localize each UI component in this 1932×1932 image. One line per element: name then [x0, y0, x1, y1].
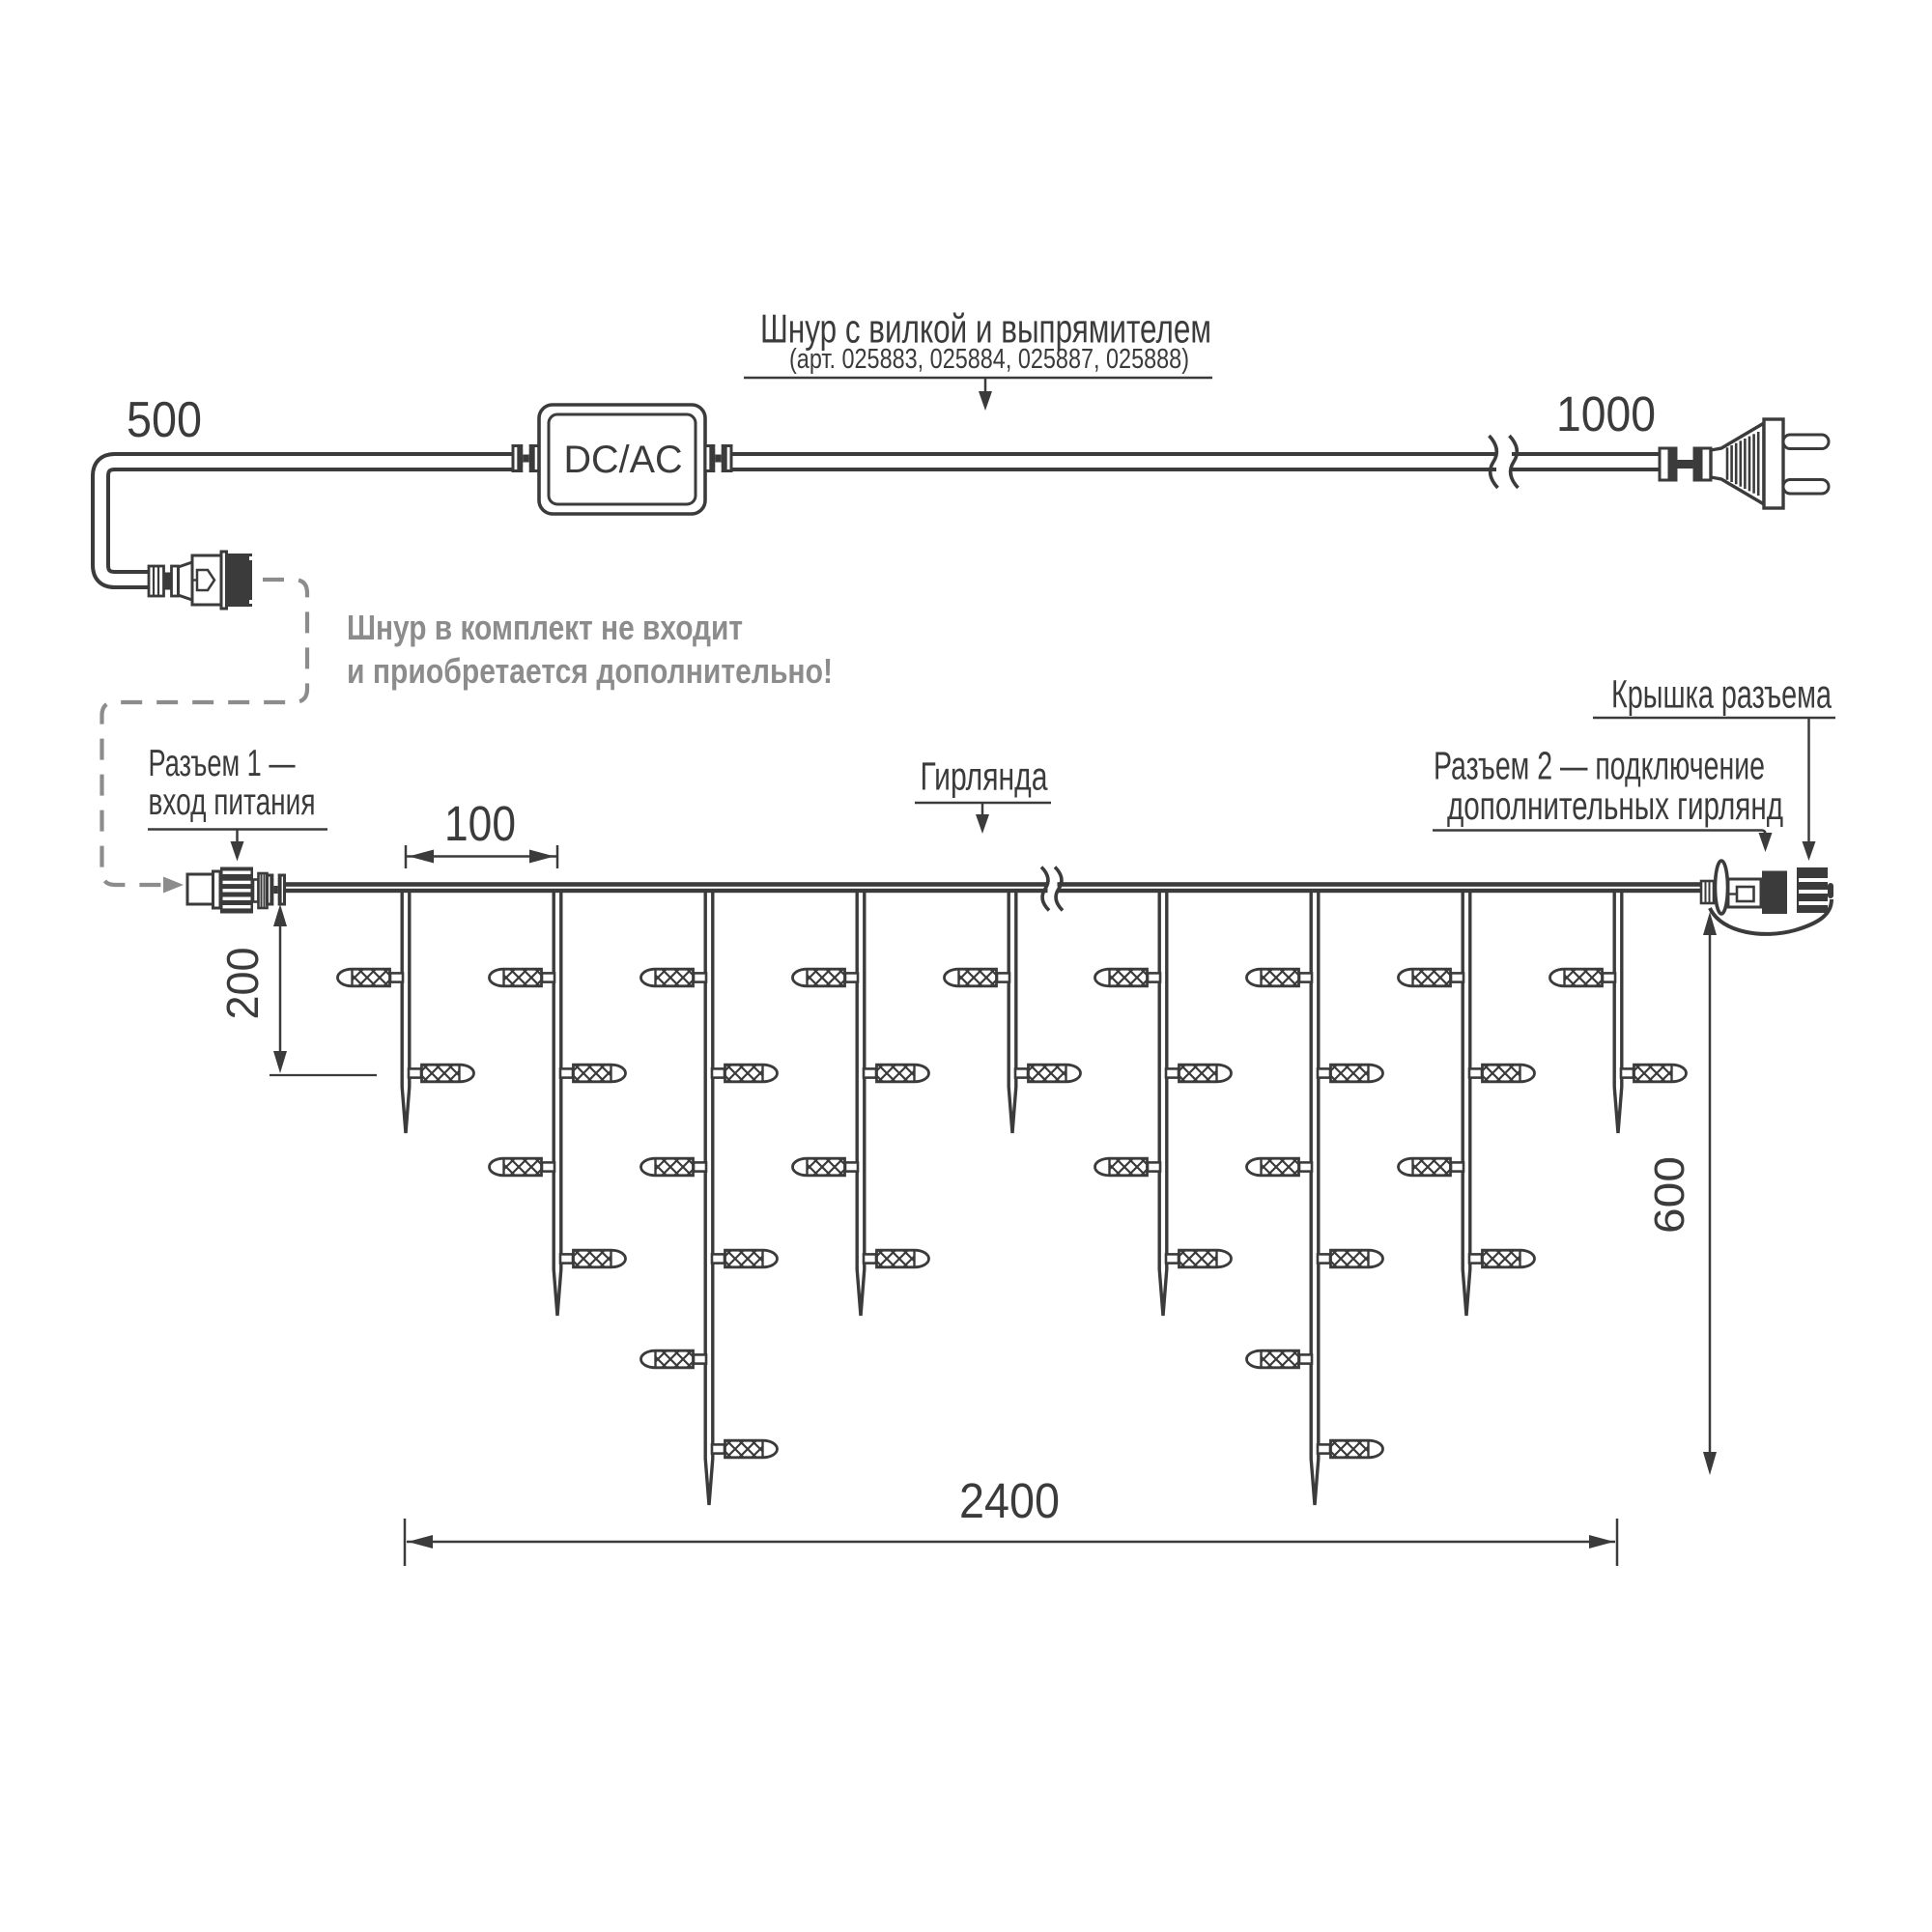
svg-text:2400: 2400 [959, 1473, 1060, 1528]
svg-text:600: 600 [1646, 1156, 1693, 1234]
svg-text:500: 500 [127, 392, 202, 448]
svg-text:1000: 1000 [1556, 386, 1656, 441]
svg-text:дополнительных гирлянд: дополнительных гирлянд [1447, 783, 1783, 828]
svg-text:вход питания: вход питания [149, 781, 316, 823]
svg-text:и приобретается дополнительно!: и приобретается дополнительно! [347, 651, 833, 691]
svg-text:Гирлянда: Гирлянда [921, 754, 1048, 799]
svg-text:(арт. 025883, 025884, 025887,: (арт. 025883, 025884, 025887, 025888) [789, 344, 1189, 375]
svg-text:Шнур в комплект не входит: Шнур в комплект не входит [347, 608, 743, 647]
svg-text:200: 200 [217, 948, 268, 1020]
svg-text:DC/AC: DC/AC [564, 439, 683, 481]
svg-text:100: 100 [444, 796, 516, 851]
svg-text:Разъем 2 — подключение: Разъем 2 — подключение [1434, 744, 1765, 788]
svg-text:Крышка разъема: Крышка разъема [1611, 672, 1832, 717]
svg-text:Разъем 1 —: Разъем 1 — [149, 743, 296, 784]
